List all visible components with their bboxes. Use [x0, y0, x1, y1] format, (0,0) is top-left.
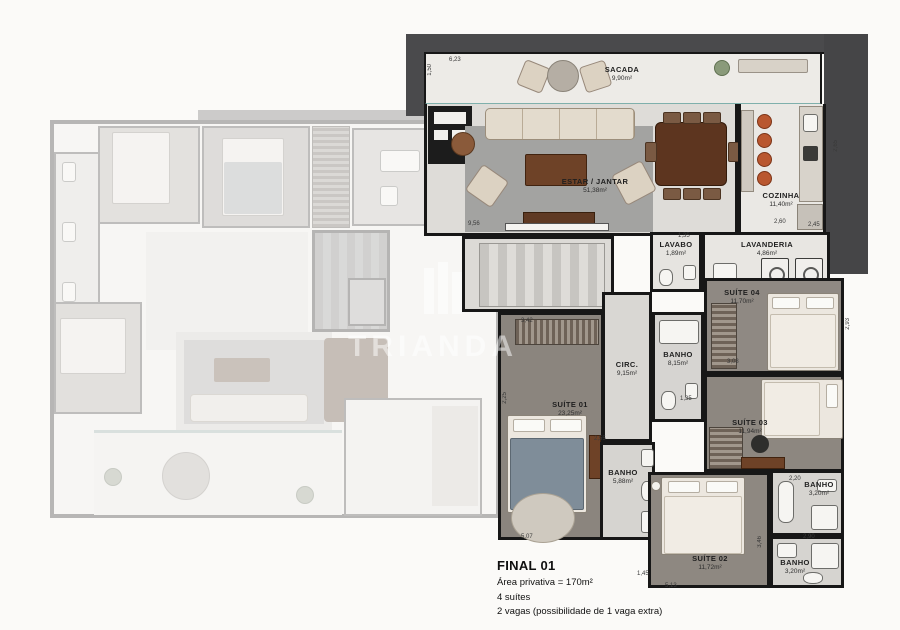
room-label-sacada: SACADA 9,90m² [574, 66, 670, 82]
dimension-label: 6,23 [449, 57, 461, 63]
ghost-coffee-table-icon [214, 358, 270, 382]
room-suite02: SUÍTE 02 11,72m² [648, 472, 770, 588]
dimension-label: 9,56 [468, 221, 480, 227]
dimension-label: 2,25 [502, 392, 508, 404]
ghost-fixture [62, 282, 76, 302]
bed-icon [661, 477, 745, 555]
dining-chair-icon [703, 188, 721, 200]
bar-stool-icon [757, 152, 772, 167]
ghost-plant-icon [104, 468, 122, 486]
room-banho-suite01: BANHO 5,88m² [600, 442, 655, 540]
roof-band-right [824, 34, 868, 274]
desk-chair-icon [751, 435, 769, 453]
shower-icon [811, 505, 838, 530]
room-sacada: SACADA 9,90m² [424, 52, 822, 106]
cooktop-icon [803, 146, 818, 161]
dining-table-icon [655, 122, 727, 186]
dimension-label: 1,35 [678, 233, 690, 239]
dimension-label: 2,20 [789, 476, 801, 482]
room-label-estar-jantar: ESTAR / JANTAR 51,38m² [545, 178, 645, 194]
ghost-fixture [62, 162, 76, 182]
toilet-icon [661, 391, 676, 410]
roof-band-left [406, 50, 426, 116]
dimension-label: 2,60 [774, 219, 786, 225]
ghost-blanket [224, 162, 282, 214]
ghost-plant-icon [296, 486, 314, 504]
ghost-sofa-icon [190, 394, 308, 422]
dimension-label: 2,55 [594, 436, 606, 442]
sink-icon [777, 543, 797, 558]
dimension-label: 2,90 [803, 534, 815, 540]
bar-stool-icon [757, 133, 772, 148]
kitchen-island-icon [741, 110, 754, 192]
ghost-closet-icon [312, 126, 350, 228]
room-banho-suite04: BANHO 8,15m² [652, 312, 704, 422]
bar-stool-icon [757, 171, 772, 186]
ghost-round-table-icon [162, 452, 210, 500]
dimension-label: 2,45 [808, 222, 820, 228]
ghost-counter [432, 406, 478, 506]
dining-chair-icon [663, 112, 681, 124]
bed-icon [767, 293, 839, 371]
floorplan-canvas: SACADA 9,90m² ESTAR / JANTAR 51,38m² [0, 0, 900, 630]
unit-suites-line: 4 suítes [497, 591, 662, 606]
dimension-label: 1,35 [680, 396, 692, 402]
dimension-label: 2,65 [833, 140, 839, 152]
ghost-elevator [348, 278, 386, 326]
watermark-text: TRIANDA [348, 330, 518, 364]
room-banho-suite03: BANHO 3,20m² [770, 470, 844, 536]
unit-parking-line: 2 vagas (possibilidade de 1 vaga extra) [497, 605, 662, 620]
room-estar-jantar: ESTAR / JANTAR 51,38m² [424, 104, 738, 236]
room-label-lavabo: LAVABO 1,89m² [654, 241, 698, 257]
developer-logo-icon [424, 262, 470, 314]
room-label-banho-suite01: BANHO 5,88m² [603, 469, 643, 485]
dining-chair-icon [663, 188, 681, 200]
nightstand-icon [651, 481, 661, 491]
room-label-suite03: SUÍTE 03 11,94m² [721, 419, 779, 435]
dining-chair-icon [645, 142, 657, 162]
dimension-label: 3,08 [727, 359, 739, 365]
shower-icon [659, 320, 699, 344]
room-label-banho-suite04: BANHO 8,15m² [657, 351, 699, 367]
sofa-icon [485, 108, 635, 140]
dimension-label: 1,45 [637, 571, 649, 577]
side-table-icon [451, 132, 475, 156]
ghost-fixture [62, 222, 76, 242]
unit-info-block: FINAL 01 Área privativa = 170m² 4 suítes… [497, 558, 662, 620]
sink-icon [683, 265, 696, 280]
bar-stool-icon [757, 114, 772, 129]
lounge-chair-icon [516, 59, 551, 94]
room-cozinha: COZINHA 11,40m² [738, 104, 826, 236]
dimension-label: 5,07 [521, 534, 533, 540]
room-suite04: SUÍTE 04 11,70m² [704, 278, 844, 374]
dimension-label: 1,50 [427, 64, 433, 76]
ghost-balcony [94, 430, 342, 518]
shelf-icon [505, 223, 609, 231]
dining-chair-icon [683, 112, 701, 124]
room-entry-hall [462, 236, 614, 312]
plant-icon [714, 60, 730, 76]
room-label-circ: CIRC. 9,15m² [606, 361, 648, 377]
ghost-fixture [380, 150, 420, 172]
dimension-label: 2,93 [845, 318, 851, 330]
room-label-banho-suite02: BANHO 3,20m² [774, 559, 816, 575]
room-label-suite01: SUÍTE 01 23,25m² [541, 401, 599, 417]
ghost-bed-icon [112, 132, 170, 204]
ghost-bathrooms [54, 152, 100, 320]
toilet-icon [659, 269, 673, 286]
bench-icon [738, 59, 808, 73]
stairs-icon [479, 243, 605, 307]
room-label-lavanderia: LAVANDERIA 4,86m² [727, 241, 807, 257]
dining-chair-icon [703, 112, 721, 124]
dimension-label: 5,13 [665, 583, 677, 589]
room-label-suite04: SUÍTE 04 11,70m² [713, 289, 771, 305]
bathtub-icon [778, 481, 794, 523]
room-lavabo: LAVABO 1,89m² [650, 232, 702, 292]
room-suite03: SUÍTE 03 11,94m² [704, 374, 844, 472]
room-circ: CIRC. 9,15m² [602, 292, 652, 442]
roof-band-top [406, 34, 868, 54]
ghost-fixture [380, 186, 398, 206]
kitchen-sink-icon [803, 114, 818, 132]
room-label-suite02: SUÍTE 02 11,72m² [675, 555, 745, 571]
unit-area-line: Área privativa = 170m² [497, 576, 662, 591]
desk-icon [741, 457, 785, 469]
sink-icon [641, 449, 654, 467]
dining-chair-icon [683, 188, 701, 200]
room-label-cozinha: COZINHA 11,40m² [745, 192, 817, 208]
dimension-label: 3,42 [521, 318, 533, 324]
ghost-bed-icon [60, 318, 126, 374]
room-banho-suite02: BANHO 3,20m² [770, 536, 844, 588]
dimension-label: 3,46 [757, 536, 763, 548]
room-label-banho-suite03: BANHO 3,20m² [796, 481, 842, 497]
